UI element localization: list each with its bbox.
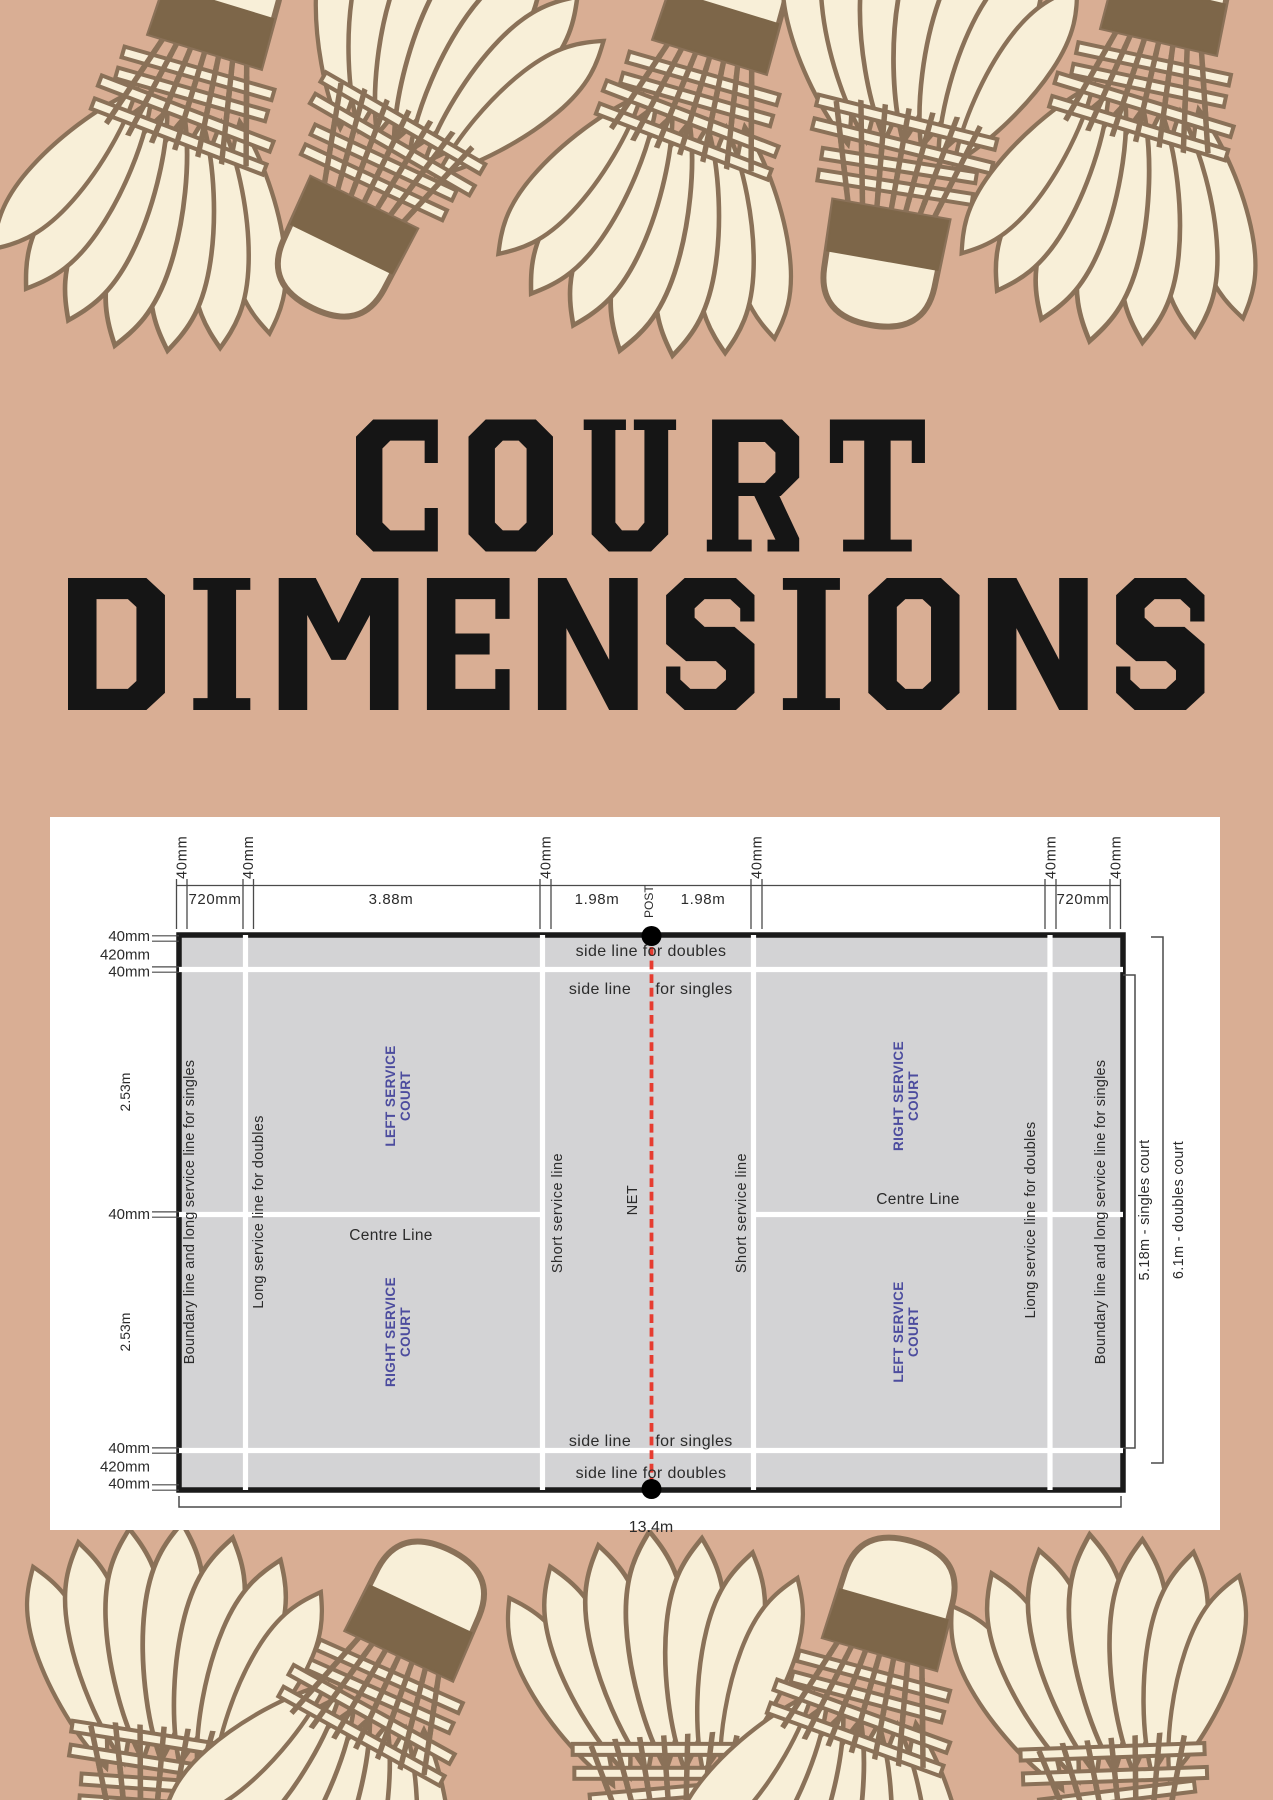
svg-text:40mm: 40mm <box>108 1440 150 1457</box>
svg-text:2.53m: 2.53m <box>117 1073 133 1112</box>
svg-text:for singles: for singles <box>655 1433 732 1450</box>
svg-text:40mm: 40mm <box>539 836 555 880</box>
svg-text:Centre Line: Centre Line <box>876 1191 959 1208</box>
svg-text:RIGHT SERVICE: RIGHT SERVICE <box>383 1277 398 1387</box>
svg-text:RIGHT SERVICE: RIGHT SERVICE <box>891 1041 906 1151</box>
svg-text:Liong service line for doubles: Liong service line for doubles <box>1023 1122 1039 1319</box>
svg-text:side line: side line <box>569 1433 631 1450</box>
svg-text:side line for doubles: side line for doubles <box>576 943 727 960</box>
svg-text:Centre Line: Centre Line <box>349 1227 432 1244</box>
svg-text:40mm: 40mm <box>108 1206 150 1223</box>
svg-text:5.18m - singles court: 5.18m - singles court <box>1137 1140 1153 1281</box>
svg-text:40mm: 40mm <box>175 836 191 880</box>
svg-text:3.88m: 3.88m <box>369 891 414 908</box>
svg-text:Long service line for doubles: Long service line for doubles <box>251 1115 267 1308</box>
svg-text:POST: POST <box>642 885 656 918</box>
svg-text:40mm: 40mm <box>108 928 150 945</box>
svg-text:COURT: COURT <box>398 1071 413 1121</box>
svg-text:for singles: for singles <box>655 981 732 998</box>
svg-text:6.1m - doubles court: 6.1m - doubles court <box>1171 1141 1187 1279</box>
svg-text:40mm: 40mm <box>108 1476 150 1493</box>
svg-text:Short service line: Short service line <box>734 1153 750 1273</box>
svg-text:720mm: 720mm <box>1056 891 1109 908</box>
svg-text:NET: NET <box>625 1185 641 1216</box>
svg-text:side line for doubles: side line for doubles <box>576 1465 727 1482</box>
svg-text:COURT: COURT <box>906 1307 921 1357</box>
svg-text:40mm: 40mm <box>1109 836 1125 880</box>
svg-text:side line: side line <box>569 981 631 998</box>
svg-text:LEFT SERVICE: LEFT SERVICE <box>891 1281 906 1382</box>
svg-text:Short service line: Short service line <box>550 1153 566 1273</box>
svg-text:40mm: 40mm <box>108 964 150 981</box>
svg-text:40mm: 40mm <box>241 836 257 880</box>
svg-text:13.4m: 13.4m <box>629 1519 673 1536</box>
svg-text:2.53m: 2.53m <box>117 1313 133 1352</box>
svg-text:Boundary line and long service: Boundary line and long service line for … <box>182 1060 198 1364</box>
svg-text:1.98m: 1.98m <box>681 891 726 908</box>
svg-text:420mm: 420mm <box>100 1459 150 1476</box>
svg-text:420mm: 420mm <box>100 947 150 964</box>
svg-text:40mm: 40mm <box>750 836 766 880</box>
svg-text:Boundary line and long service: Boundary line and long service line for … <box>1093 1060 1109 1364</box>
svg-text:40mm: 40mm <box>1044 836 1060 880</box>
svg-text:COURT: COURT <box>906 1071 921 1121</box>
svg-text:LEFT SERVICE: LEFT SERVICE <box>383 1045 398 1146</box>
svg-text:720mm: 720mm <box>188 891 241 908</box>
svg-text:COURT: COURT <box>398 1307 413 1357</box>
svg-text:1.98m: 1.98m <box>575 891 620 908</box>
